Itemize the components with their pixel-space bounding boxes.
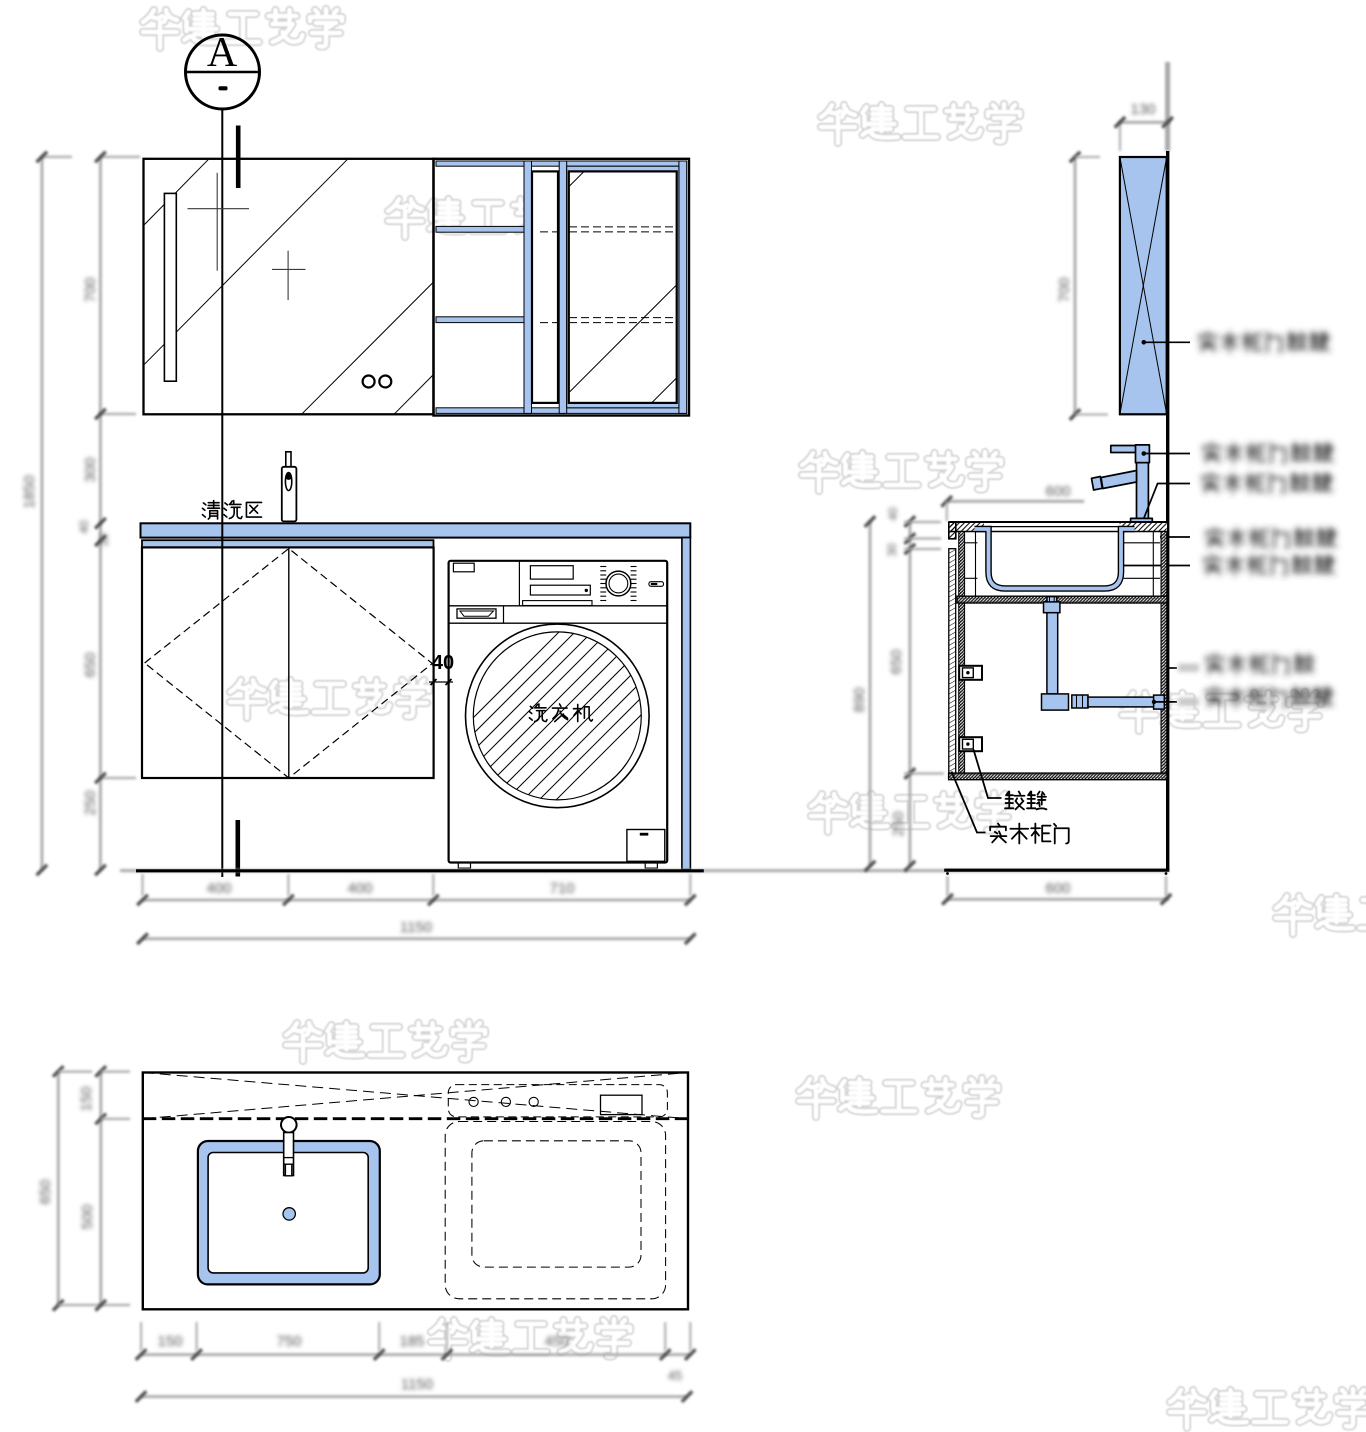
svg-text:1150: 1150 <box>400 919 432 936</box>
svg-text:250: 250 <box>890 811 907 836</box>
svg-text:710: 710 <box>549 880 574 897</box>
svg-text:45: 45 <box>668 1368 682 1383</box>
svg-text:650: 650 <box>37 1179 54 1204</box>
svg-text:130: 130 <box>1130 101 1155 118</box>
svg-text:650: 650 <box>888 649 905 674</box>
svg-text:A: A <box>207 30 238 76</box>
svg-text:890: 890 <box>851 687 868 712</box>
svg-text:400: 400 <box>206 880 231 897</box>
svg-text:450: 450 <box>544 1333 569 1350</box>
svg-text:30: 30 <box>885 543 899 557</box>
svg-text:185: 185 <box>399 1333 424 1350</box>
svg-text:600: 600 <box>1045 483 1070 500</box>
svg-text:500: 500 <box>79 1204 96 1229</box>
svg-text:700: 700 <box>1056 277 1073 302</box>
svg-text:750: 750 <box>276 1333 301 1350</box>
svg-text:1150: 1150 <box>401 1376 433 1393</box>
svg-text:40: 40 <box>77 520 91 534</box>
svg-text:30: 30 <box>97 533 111 547</box>
svg-text:1850: 1850 <box>21 475 38 508</box>
svg-text:40: 40 <box>432 652 454 674</box>
svg-text:600: 600 <box>1045 880 1070 897</box>
svg-text:300: 300 <box>82 457 99 482</box>
svg-text:150: 150 <box>78 1086 95 1111</box>
svg-text:700: 700 <box>82 277 99 302</box>
svg-text:40: 40 <box>886 507 900 521</box>
svg-text:400: 400 <box>347 880 372 897</box>
svg-text:650: 650 <box>82 652 99 677</box>
svg-text:150: 150 <box>157 1333 182 1350</box>
svg-text:250: 250 <box>82 790 99 815</box>
